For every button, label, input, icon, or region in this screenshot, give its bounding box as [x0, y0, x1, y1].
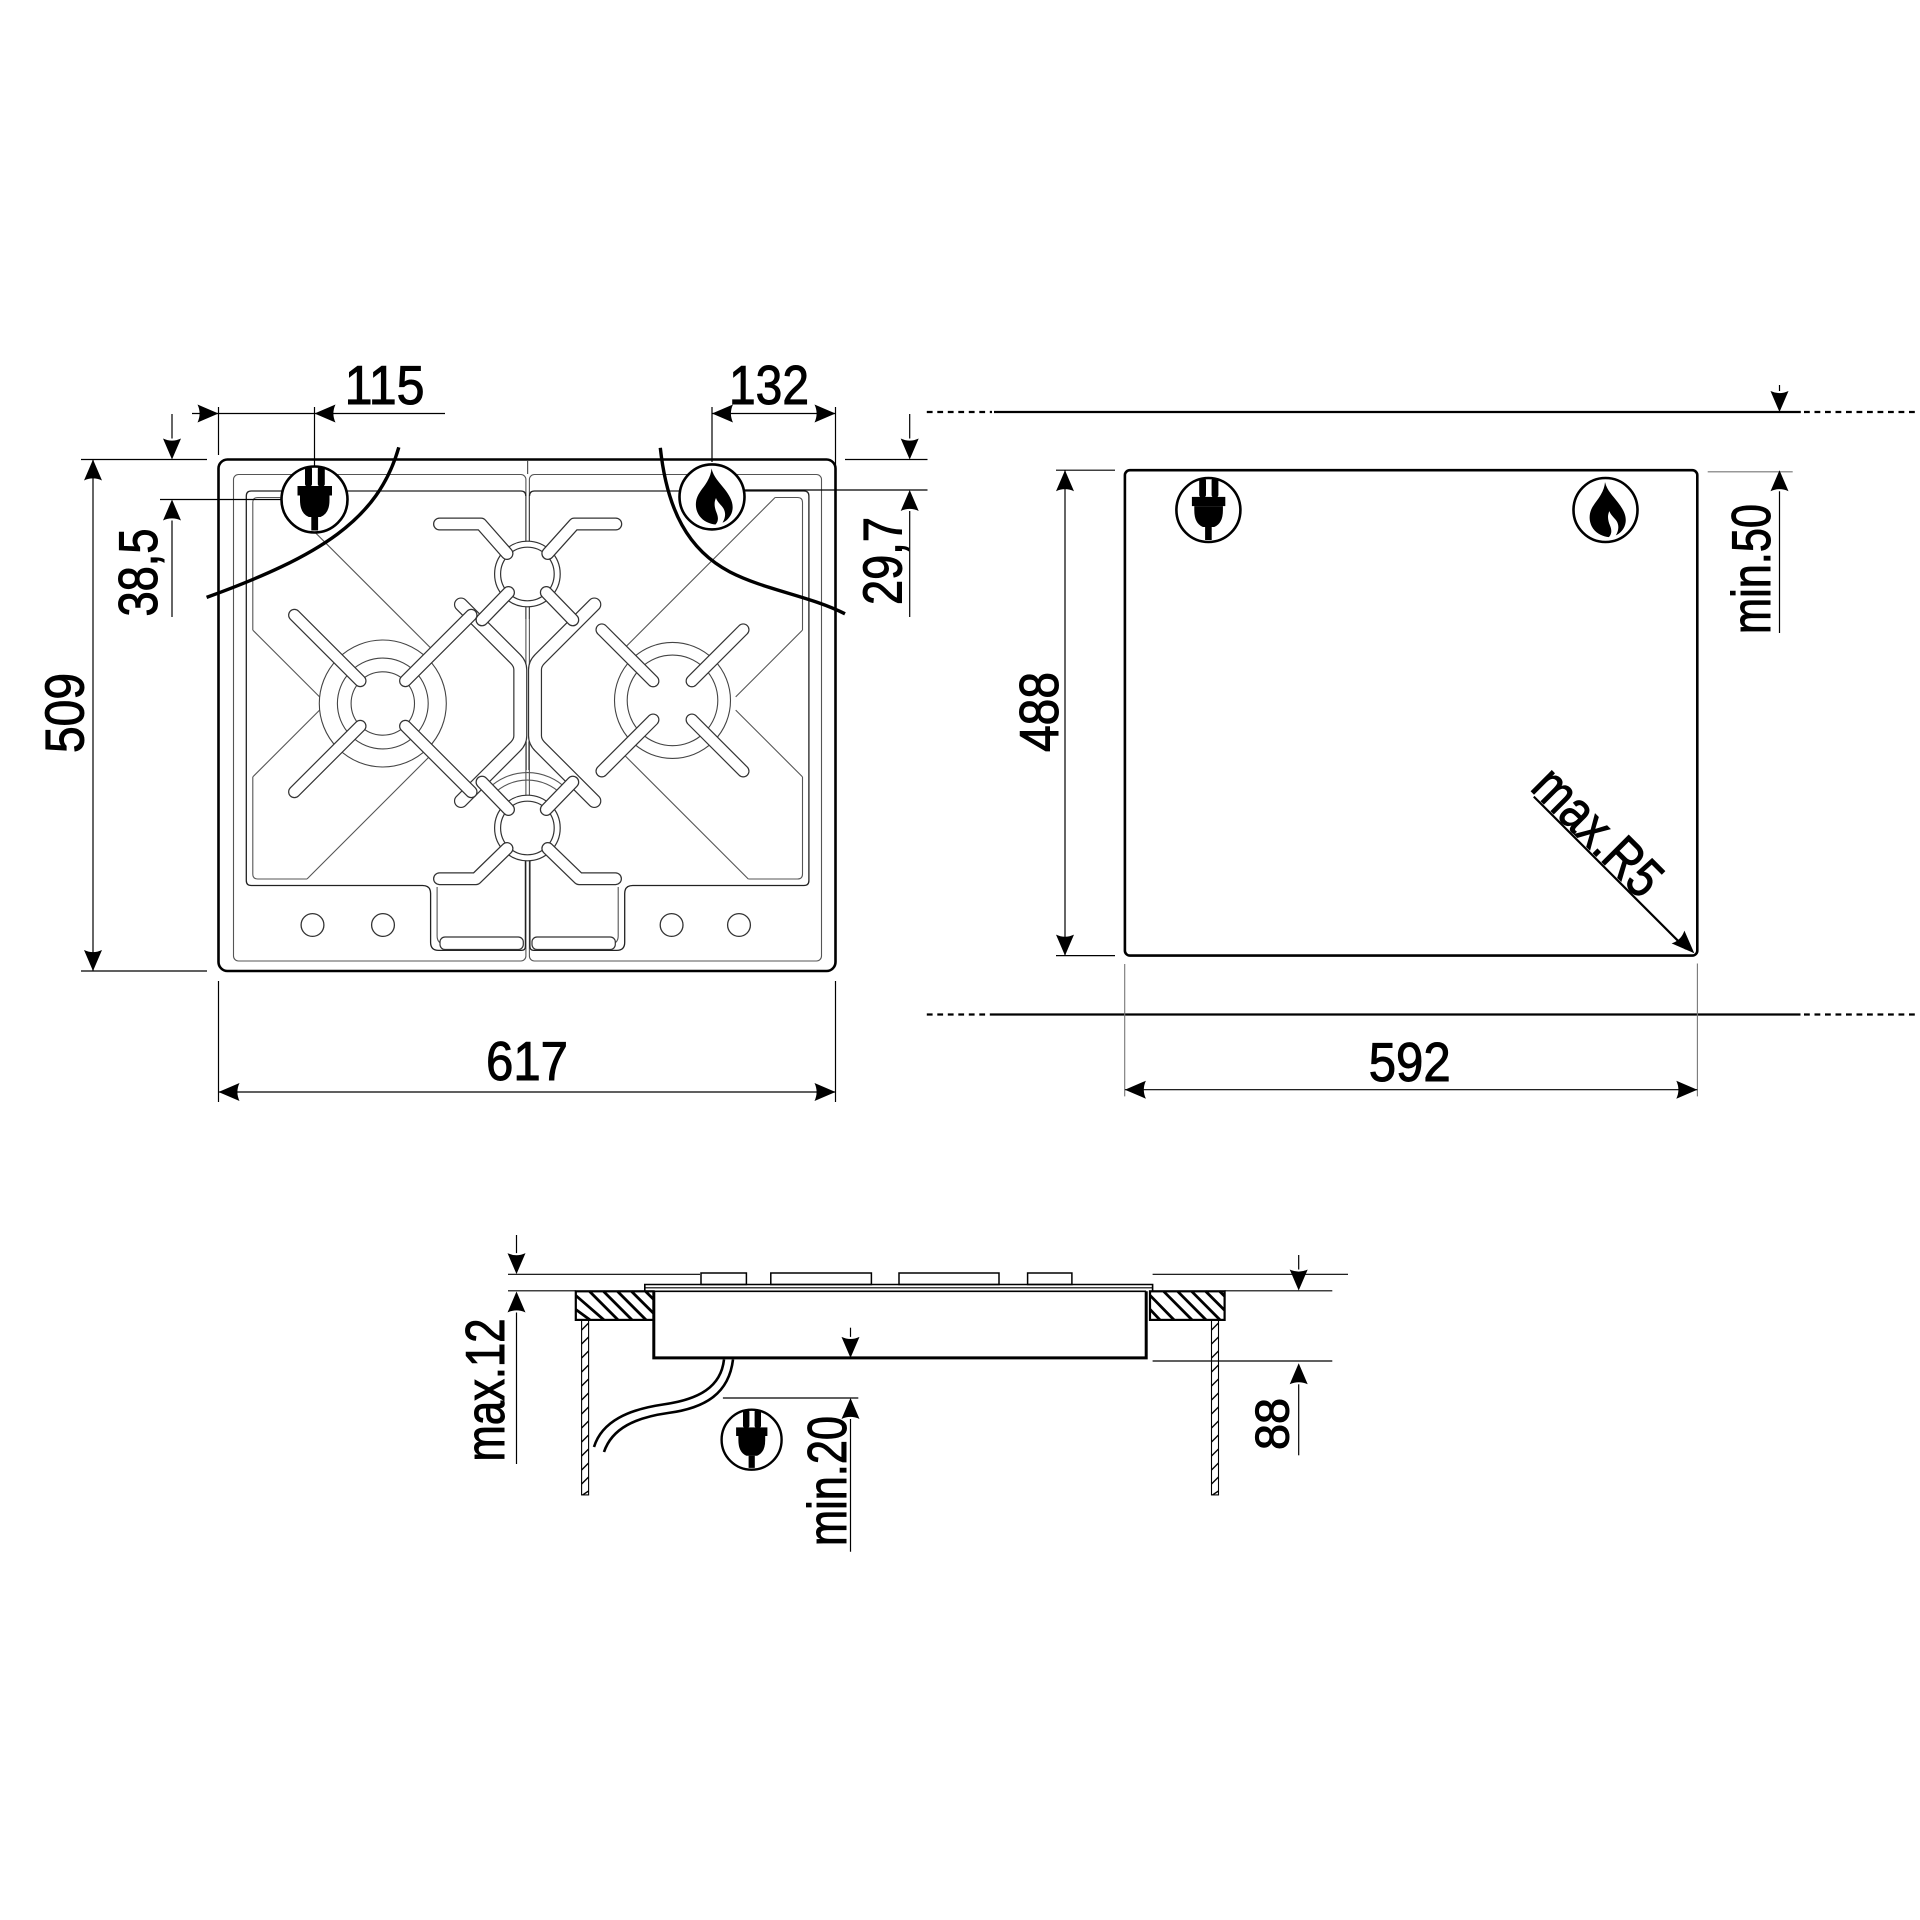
svg-text:min.20: min.20	[796, 1416, 858, 1546]
svg-text:132: 132	[729, 354, 809, 416]
svg-text:38,5: 38,5	[107, 529, 169, 617]
svg-text:115: 115	[345, 354, 425, 416]
svg-text:88: 88	[1246, 1398, 1299, 1450]
svg-text:min.50: min.50	[1720, 504, 1782, 634]
svg-text:592: 592	[1369, 1031, 1451, 1093]
svg-text:509: 509	[33, 673, 95, 753]
svg-text:29,7: 29,7	[852, 517, 914, 605]
svg-text:max.12: max.12	[454, 1319, 516, 1462]
svg-text:617: 617	[486, 1030, 568, 1092]
svg-text:488: 488	[1008, 672, 1070, 752]
